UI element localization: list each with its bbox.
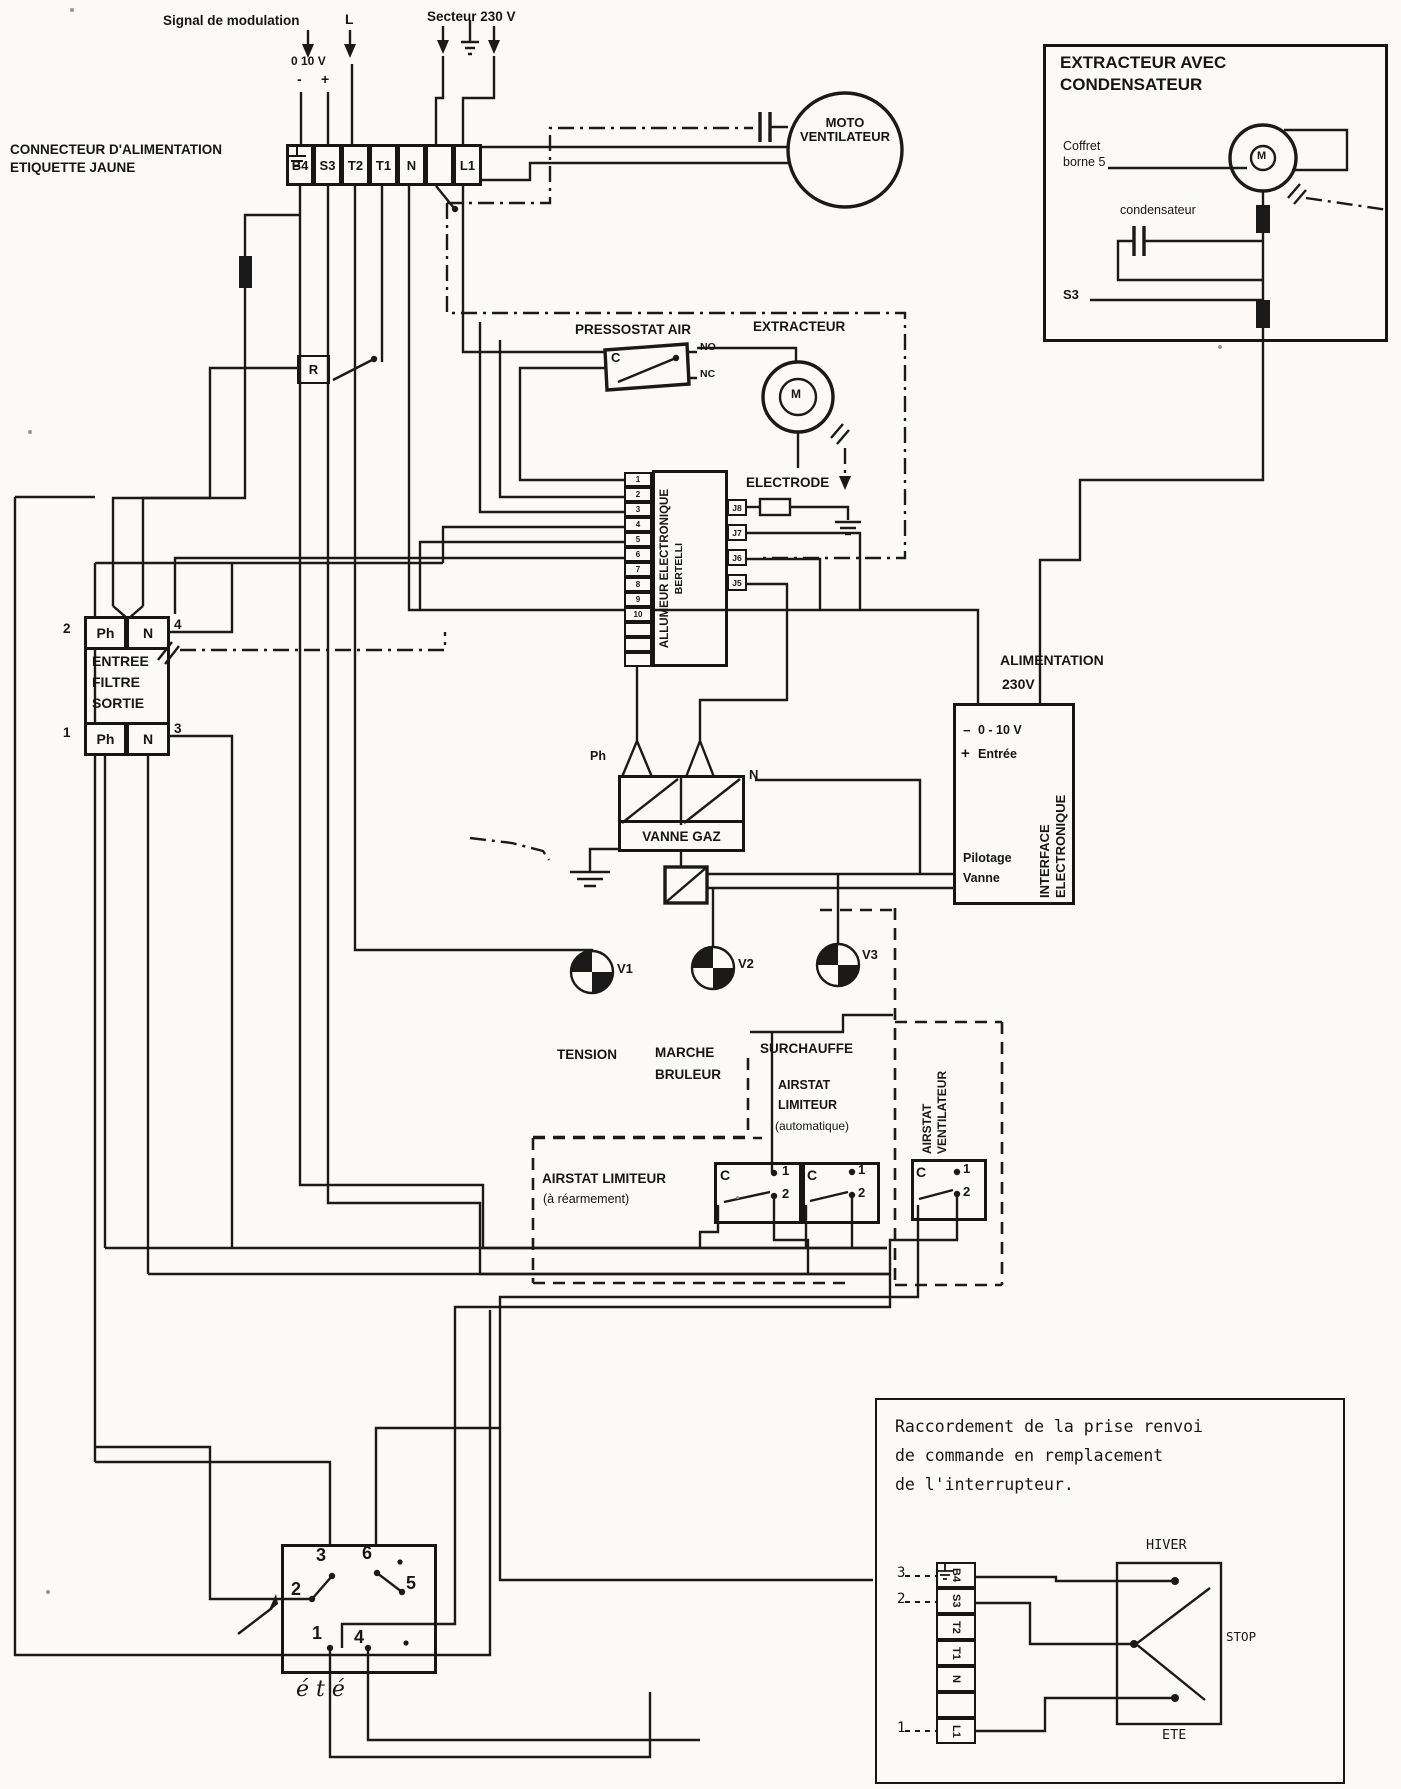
racc-terminal-s3: S3 bbox=[950, 1594, 962, 1607]
capacitor-icon bbox=[760, 112, 788, 142]
filtre-bottom-row: Ph N bbox=[84, 722, 170, 756]
ete-num-4: 4 bbox=[354, 1628, 364, 1648]
switch3-2: 2 bbox=[963, 1185, 970, 1199]
switch1-1: 1 bbox=[782, 1164, 789, 1178]
switch3-c: C bbox=[916, 1165, 926, 1180]
airstat-auto-3: (automatique) bbox=[775, 1120, 849, 1133]
switch2-2: 2 bbox=[858, 1186, 865, 1200]
secteur-label: Secteur 230 V bbox=[427, 10, 516, 25]
allumeur-title-2: BERTELLI bbox=[673, 543, 685, 594]
raccordement-num-2: 2 bbox=[897, 1592, 905, 1607]
stop-label: STOP bbox=[1226, 1630, 1256, 1644]
scan-speck bbox=[70, 8, 74, 12]
down-arrow-icon bbox=[488, 26, 500, 54]
terminal-s3: S3 bbox=[314, 144, 342, 186]
filtre-num-4: 4 bbox=[174, 618, 182, 633]
terminal-t1: T1 bbox=[370, 144, 398, 186]
power-terminal-block: B4 S3 T2 T1 N L1 bbox=[286, 144, 482, 186]
raccordement-title-2: de commande en remplacement bbox=[895, 1447, 1163, 1465]
airstat-rearm-2: (à réarmement) bbox=[543, 1193, 629, 1207]
moto-ventilateur-circle bbox=[788, 93, 902, 207]
allumeur-pin-blank bbox=[624, 652, 652, 667]
terminal-l1: L1 bbox=[454, 144, 482, 186]
pressostat-title: PRESSOSTAT AIR bbox=[575, 323, 691, 338]
filtre-num-2: 2 bbox=[63, 622, 71, 637]
allumeur-pin: 8 bbox=[624, 577, 652, 592]
lamp-v2-label: V2 bbox=[738, 957, 754, 971]
interface-0-10v: 0 - 10 V bbox=[978, 724, 1022, 738]
ete-switch-box bbox=[281, 1544, 437, 1674]
allumeur-pin: 4 bbox=[624, 517, 652, 532]
airstat-auto-1: AIRSTAT bbox=[778, 1079, 830, 1093]
relay-r-box: R bbox=[297, 355, 330, 384]
marche-label-2: BRULEUR bbox=[655, 1068, 721, 1083]
pressostat-no: NO bbox=[700, 342, 716, 354]
scale-0-10v-label: 0 10 V bbox=[291, 55, 326, 68]
raccordement-num-3: 3 bbox=[897, 1566, 905, 1581]
allumeur-pin: 6 bbox=[624, 547, 652, 562]
raccordement-num-1: 1 bbox=[897, 1721, 905, 1736]
allumeur-pin-strip: 1 2 3 4 5 6 7 8 9 10 bbox=[624, 472, 652, 667]
alim-label-1: ALIMENTATION bbox=[1000, 653, 1104, 668]
allumeur-box: ALLUMEUR ELECTRONIQUE BERTELLI bbox=[652, 470, 728, 667]
allumeur-title-1: ALLUMEUR ELECTRONIQUE bbox=[659, 489, 671, 648]
coffret-label-1: Coffret bbox=[1063, 140, 1100, 154]
ete-num-6: 6 bbox=[362, 1544, 372, 1564]
marche-label-1: MARCHE bbox=[655, 1046, 714, 1061]
ground-icon bbox=[570, 872, 610, 886]
minus-label: - bbox=[297, 72, 302, 87]
allumeur-pin-j8: J8 bbox=[727, 499, 747, 516]
electrode-resistor-icon bbox=[760, 499, 790, 515]
filtre-entree: ENTREE bbox=[92, 654, 149, 669]
interface-vertical-2: ELECTRONIQUE bbox=[1053, 712, 1068, 898]
fuse-icon bbox=[239, 256, 252, 288]
filtre-num-1: 1 bbox=[63, 726, 71, 741]
racc-terminal-l1: L1 bbox=[950, 1725, 962, 1738]
pressostat-nc: NC bbox=[700, 369, 715, 381]
terminal-n: N bbox=[398, 144, 426, 186]
interface-pilotage-2: Vanne bbox=[963, 872, 1000, 886]
switch3-1: 1 bbox=[963, 1162, 970, 1176]
lamp-v1-label: V1 bbox=[617, 962, 633, 976]
allumeur-pin: 2 bbox=[624, 487, 652, 502]
ground-icon bbox=[936, 1562, 954, 1582]
interface-minus: − bbox=[963, 724, 971, 738]
racc-terminal-t2: T2 bbox=[950, 1621, 962, 1634]
ete-label: été bbox=[296, 1678, 352, 1702]
relay-r-label: R bbox=[309, 362, 318, 377]
allumeur-pin: 1 bbox=[624, 472, 652, 487]
ground-icon bbox=[461, 20, 479, 54]
allumeur-pin: 3 bbox=[624, 502, 652, 517]
interface-vertical-1: INTERFACE bbox=[1037, 712, 1052, 898]
pressostat-c: C bbox=[611, 351, 620, 365]
alim-label-2: 230V bbox=[1002, 677, 1035, 692]
ete-num-3: 3 bbox=[316, 1546, 326, 1566]
racc-terminal-ground bbox=[936, 1692, 976, 1718]
scan-speck bbox=[46, 1590, 50, 1594]
connecteur-label-1: CONNECTEUR D'ALIMENTATION bbox=[10, 143, 222, 158]
signal-modulation-label: Signal de modulation bbox=[163, 14, 300, 29]
lamp-v1-icon bbox=[571, 951, 613, 993]
allumeur-pin: 10 bbox=[624, 607, 652, 622]
lamp-v2-icon bbox=[692, 947, 734, 989]
moto-line2: VENTILATEUR bbox=[800, 129, 890, 144]
down-arrow-icon bbox=[437, 26, 449, 54]
raccordement-title-3: de l'interrupteur. bbox=[895, 1476, 1074, 1494]
arrow-icon bbox=[268, 1594, 278, 1612]
vanne-ph-label: Ph bbox=[590, 750, 606, 764]
ete-num-1: 1 bbox=[312, 1624, 322, 1644]
allumeur-pin-blank bbox=[624, 637, 652, 652]
interface-entree: Entrée bbox=[978, 748, 1017, 762]
raccordement-terminal-strip: B4 S3 T2 T1 N L1 bbox=[936, 1562, 976, 1744]
filtre-top-row: Ph N bbox=[84, 616, 170, 650]
terminal-t2: T2 bbox=[342, 144, 370, 186]
extracteur-title: EXTRACTEUR bbox=[753, 320, 845, 335]
moto-line1: MOTO bbox=[826, 115, 865, 130]
plus-label: + bbox=[321, 72, 329, 87]
airstat-vent-2: VENTILATEUR bbox=[935, 1012, 949, 1154]
raccordement-title-1: Raccordement de la prise renvoi bbox=[895, 1418, 1203, 1436]
flex-joint-icon bbox=[831, 424, 849, 444]
ground-icon bbox=[286, 144, 308, 170]
tension-label: TENSION bbox=[557, 1048, 617, 1063]
allumeur-pin-j5: J5 bbox=[727, 574, 747, 591]
extracteur-box-title-1: EXTRACTEUR AVEC bbox=[1060, 54, 1226, 73]
allumeur-pin-j6: J6 bbox=[727, 549, 747, 566]
airstat-vent-vertical: AIRSTAT VENTILATEUR bbox=[920, 1012, 949, 1154]
vanne-gaz-box: VANNE GAZ bbox=[618, 775, 745, 852]
filtre-ph-bottom: Ph bbox=[84, 722, 127, 756]
ete-num-2: 2 bbox=[291, 1580, 301, 1600]
condenser-motor-m: M bbox=[1257, 150, 1266, 162]
interface-plus: + bbox=[961, 746, 970, 763]
allumeur-right-pins: J8 J7 J6 J5 bbox=[727, 499, 747, 591]
interface-box: − 0 - 10 V + Entrée Pilotage Vanne INTER… bbox=[953, 703, 1075, 905]
hiver-label: HIVER bbox=[1146, 1538, 1187, 1553]
allumeur-pin: 5 bbox=[624, 532, 652, 547]
scan-speck bbox=[1218, 345, 1222, 349]
extracteur-box-title-2: CONDENSATEUR bbox=[1060, 76, 1202, 95]
filtre-num-3: 3 bbox=[174, 722, 182, 737]
surchauffe-label: SURCHAUFFE bbox=[760, 1042, 853, 1057]
electrode-label: ELECTRODE bbox=[746, 476, 829, 491]
wiring-diagram-page: Signal de modulation 0 10 V - + L Secteu… bbox=[0, 0, 1401, 1789]
vanne-gaz-label: VANNE GAZ bbox=[642, 829, 721, 844]
filtre-filtre: FILTRE bbox=[92, 675, 140, 690]
s3-label: S3 bbox=[1063, 288, 1079, 302]
connecteur-label-2: ETIQUETTE JAUNE bbox=[10, 161, 135, 176]
condensateur-label: condensateur bbox=[1120, 204, 1196, 218]
ete-num-5: 5 bbox=[406, 1574, 416, 1594]
vanne-n-label: N bbox=[749, 768, 758, 782]
switch1-c: C bbox=[720, 1168, 730, 1183]
moto-ventilateur-label: MOTO VENTILATEUR bbox=[788, 116, 902, 145]
racc-terminal-t1: T1 bbox=[950, 1647, 962, 1660]
allumeur-pin: 7 bbox=[624, 562, 652, 577]
allumeur-pin-blank bbox=[624, 622, 652, 637]
filtre-ph-top: Ph bbox=[84, 616, 127, 650]
down-arrow-icon bbox=[839, 476, 851, 490]
scan-speck bbox=[28, 430, 32, 434]
extracteur-motor-m: M bbox=[791, 388, 801, 401]
ete-mode-label: ETE bbox=[1162, 1728, 1186, 1743]
switch2-c: C bbox=[807, 1168, 817, 1183]
lamp-v3-icon bbox=[817, 944, 859, 986]
airstat-rearm-1: AIRSTAT LIMITEUR bbox=[542, 1172, 666, 1187]
switch2-1: 1 bbox=[858, 1163, 865, 1177]
l-label: L bbox=[345, 12, 354, 27]
lamp-v3-label: V3 bbox=[862, 948, 878, 962]
scan-speck bbox=[736, 1196, 739, 1199]
filtre-n-top: N bbox=[127, 616, 170, 650]
filtre-sortie: SORTIE bbox=[92, 696, 144, 711]
airstat-auto-2: LIMITEUR bbox=[778, 1099, 837, 1113]
coffret-label-2: borne 5 bbox=[1063, 156, 1105, 170]
allumeur-pin: 9 bbox=[624, 592, 652, 607]
allumeur-pin-j7: J7 bbox=[727, 524, 747, 541]
down-arrow-icon bbox=[344, 30, 356, 58]
racc-terminal-n: N bbox=[950, 1675, 962, 1683]
terminal-ground bbox=[426, 144, 454, 186]
airstat-vent-1: AIRSTAT bbox=[920, 1012, 934, 1154]
switch1-2: 2 bbox=[782, 1187, 789, 1201]
interface-pilotage-1: Pilotage bbox=[963, 852, 1012, 866]
filtre-n-bottom: N bbox=[127, 722, 170, 756]
